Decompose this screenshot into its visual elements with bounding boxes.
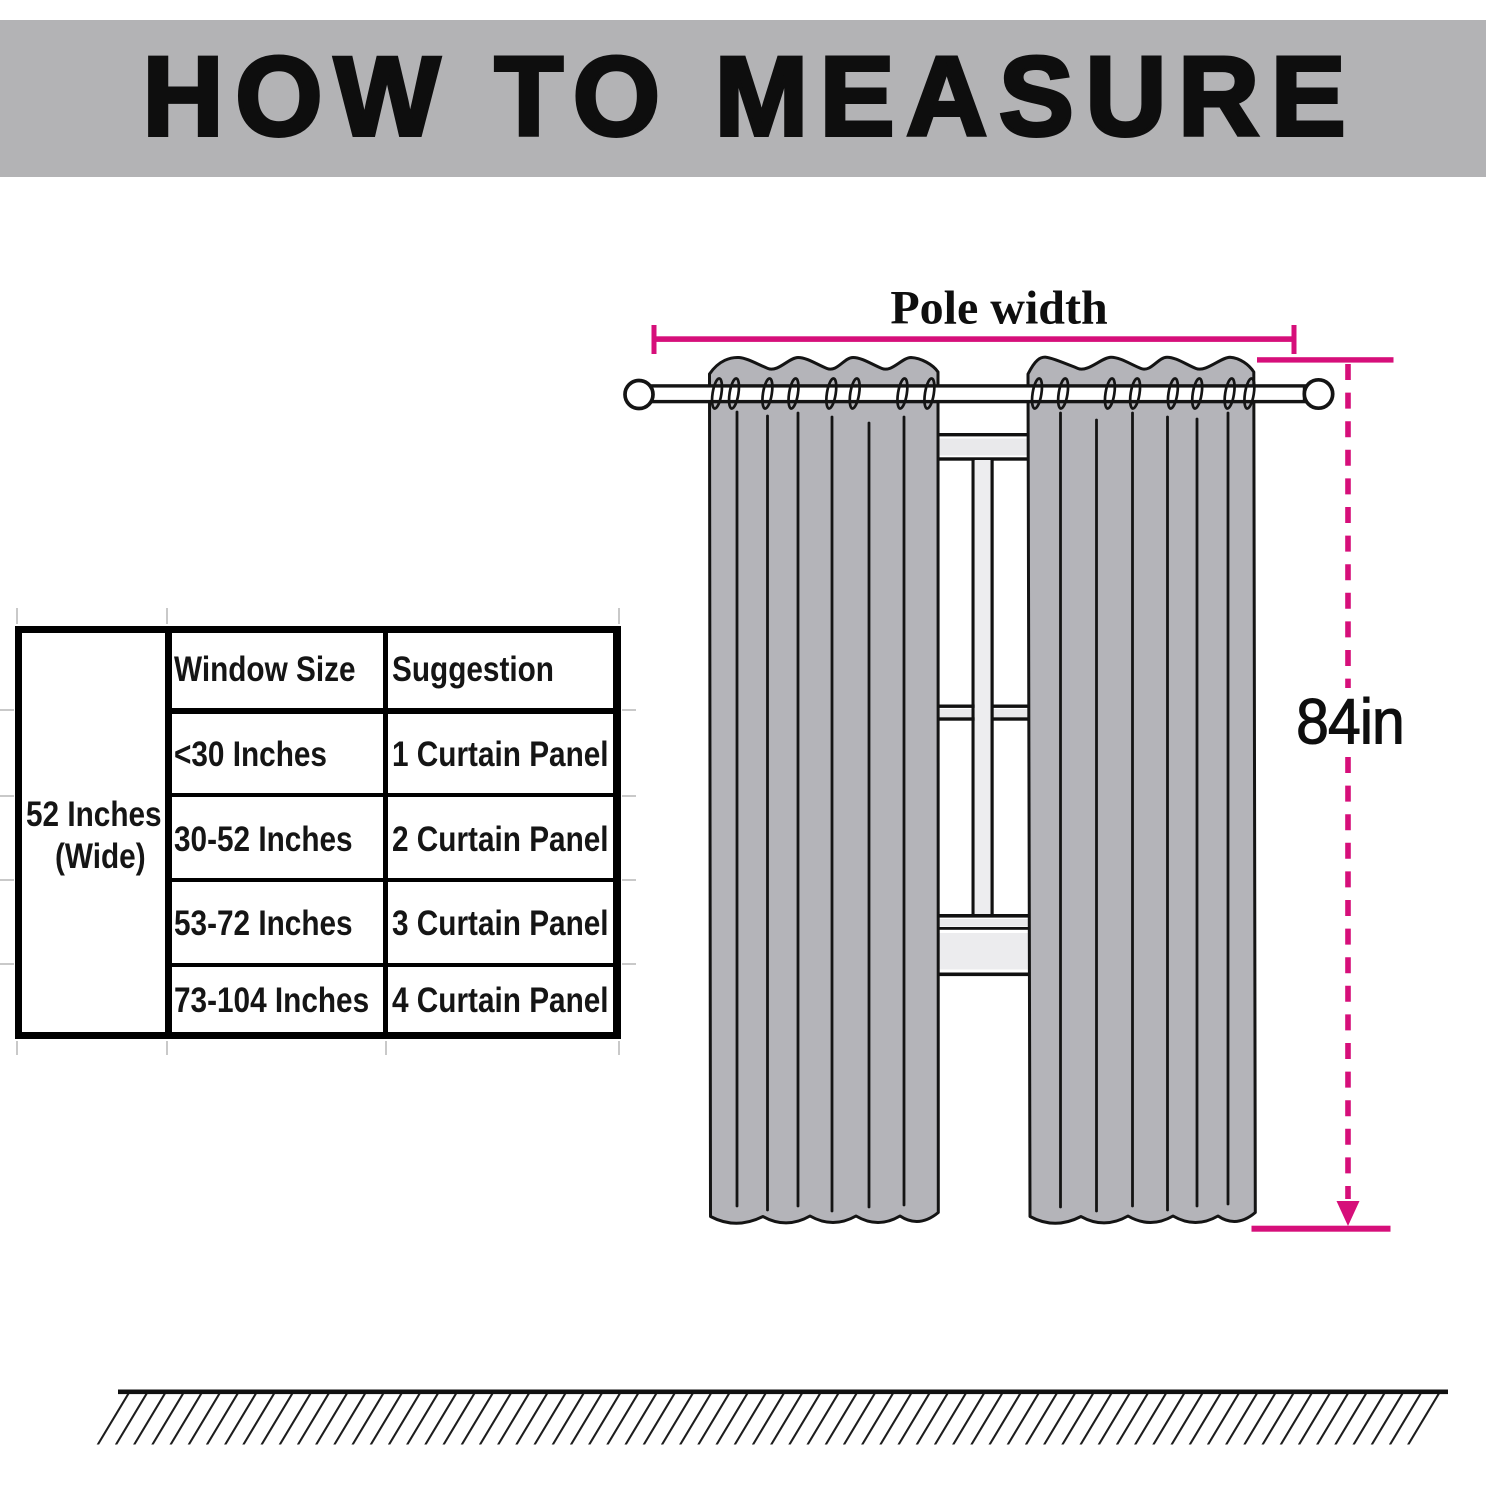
svg-text:Pole width: Pole width	[890, 282, 1107, 335]
svg-text:84in: 84in	[1296, 686, 1404, 758]
